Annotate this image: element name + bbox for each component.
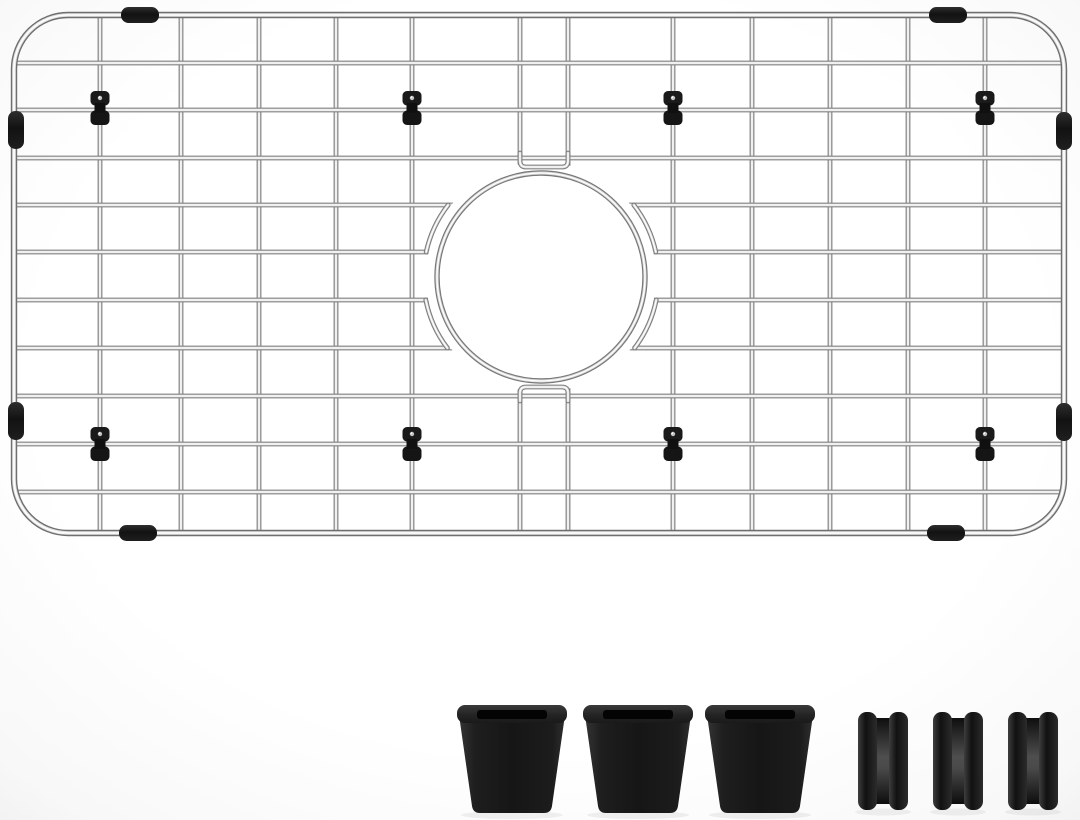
- rubber-foot: [705, 705, 815, 819]
- edge-bumper: [927, 525, 965, 541]
- product-image: [0, 0, 1080, 820]
- side-bumper: [930, 712, 986, 816]
- edge-bumper: [8, 402, 24, 440]
- rubber-feet-set: [457, 705, 815, 819]
- edge-bumper: [8, 111, 24, 149]
- side-bumper: [855, 712, 911, 816]
- side-bumper: [1005, 712, 1061, 816]
- foot-slot: [603, 710, 673, 719]
- rubber-foot: [583, 705, 693, 819]
- edge-bumper: [121, 7, 159, 23]
- edge-bumper: [1056, 112, 1072, 150]
- edge-bumper: [119, 525, 157, 541]
- side-bumpers-set: [855, 712, 1061, 816]
- photo-background: [0, 0, 1080, 820]
- edge-bumper: [1056, 403, 1072, 441]
- edge-bumper: [929, 7, 967, 23]
- drain-opening-mask: [426, 162, 656, 392]
- sink-grid-product-photo: [0, 0, 1080, 820]
- foot-slot: [477, 710, 547, 719]
- foot-slot: [725, 710, 795, 719]
- rubber-foot: [457, 705, 567, 819]
